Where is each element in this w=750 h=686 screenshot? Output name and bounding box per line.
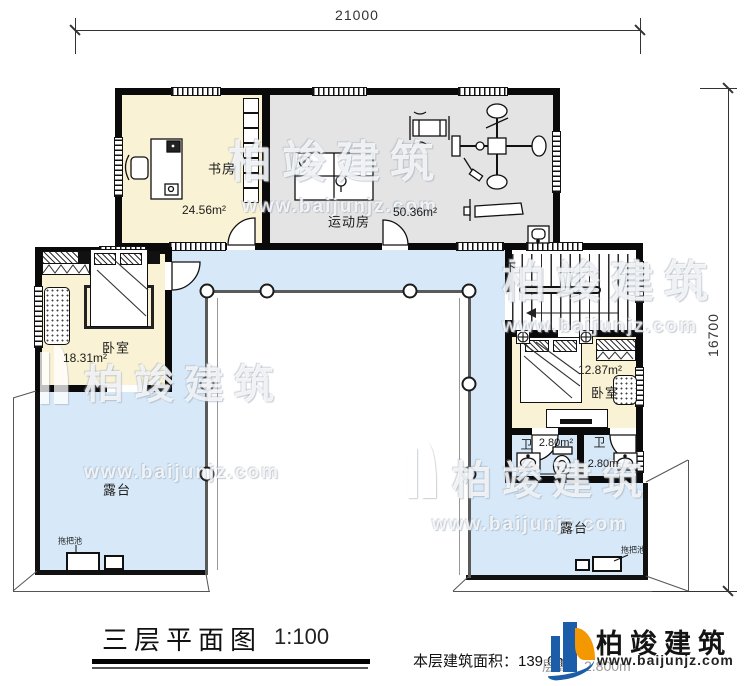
plan-title: 三层平面图 (102, 620, 262, 657)
dim-label-top: 21000 (335, 7, 379, 23)
room-label-terrace-left: 露台 (103, 480, 131, 499)
room-area-bath-right: 2.80m (588, 458, 619, 470)
brand-website: www.baijunjz.com (597, 652, 734, 668)
wardrobe-zigzag (43, 265, 633, 359)
room-label-gym: 运动房 (328, 212, 370, 231)
mop-sink-leaders (76, 545, 628, 561)
brand-logo (545, 616, 597, 680)
floor-plan-page: 柏竣建筑 www.baijunjz.com 柏竣建筑 www.baijunjz.… (0, 0, 750, 686)
dim-line-right (728, 88, 729, 592)
title-underline-thick (92, 659, 370, 664)
room-label-study: 书房 (208, 159, 236, 178)
room-area-bedroom-right: 12.87m² (578, 363, 622, 377)
dim-ext-line (75, 18, 76, 54)
plan-scale: 1:100 (274, 624, 329, 650)
dim-label-right: 16700 (705, 313, 721, 357)
stairs-direction (526, 266, 618, 318)
room-label-bath-left: 卫 (520, 436, 533, 453)
room-label-bath-right: 卫 (593, 434, 606, 451)
mop-sink-label-left: 拖把池 (58, 536, 82, 547)
plan-detail-overlay (0, 0, 750, 610)
gym-machine (452, 104, 546, 189)
dim-ext-line (640, 18, 641, 54)
treadmill (410, 112, 449, 144)
column-anchor-symbols (518, 332, 591, 342)
bath-sink (517, 453, 637, 470)
logo-swoosh (546, 654, 596, 682)
room-area-study: 24.56m² (182, 203, 226, 217)
bed-right-details (524, 342, 580, 398)
gym-bench (464, 199, 523, 221)
watermark-logo-mark (40, 352, 49, 404)
dim-line-top (75, 30, 640, 31)
gym-table (295, 153, 373, 200)
stairs-down-label: 下 (505, 259, 517, 275)
gym-wall-sink (528, 226, 549, 243)
door-arc-study (228, 218, 255, 245)
door-arc-gym (383, 220, 408, 245)
dim-ext-line (652, 591, 737, 592)
room-area-bedroom-left: 18.31m² (63, 351, 107, 365)
mop-sink-label-right: 拖把池 (621, 545, 645, 556)
room-area-gym: 50.36m² (393, 205, 437, 219)
title-underline-thin (92, 667, 368, 669)
bed-left-details (97, 258, 148, 316)
room-label-terrace-right: 露台 (560, 518, 588, 537)
room-label-bedroom-right: 卧室 (591, 383, 619, 402)
desk (126, 139, 183, 199)
door-arc-bedroom-left (172, 262, 200, 290)
watermark-logo-mark (408, 448, 417, 498)
dim-ext-line (700, 88, 737, 89)
room-area-bath-left: 2.80m² (539, 437, 573, 449)
